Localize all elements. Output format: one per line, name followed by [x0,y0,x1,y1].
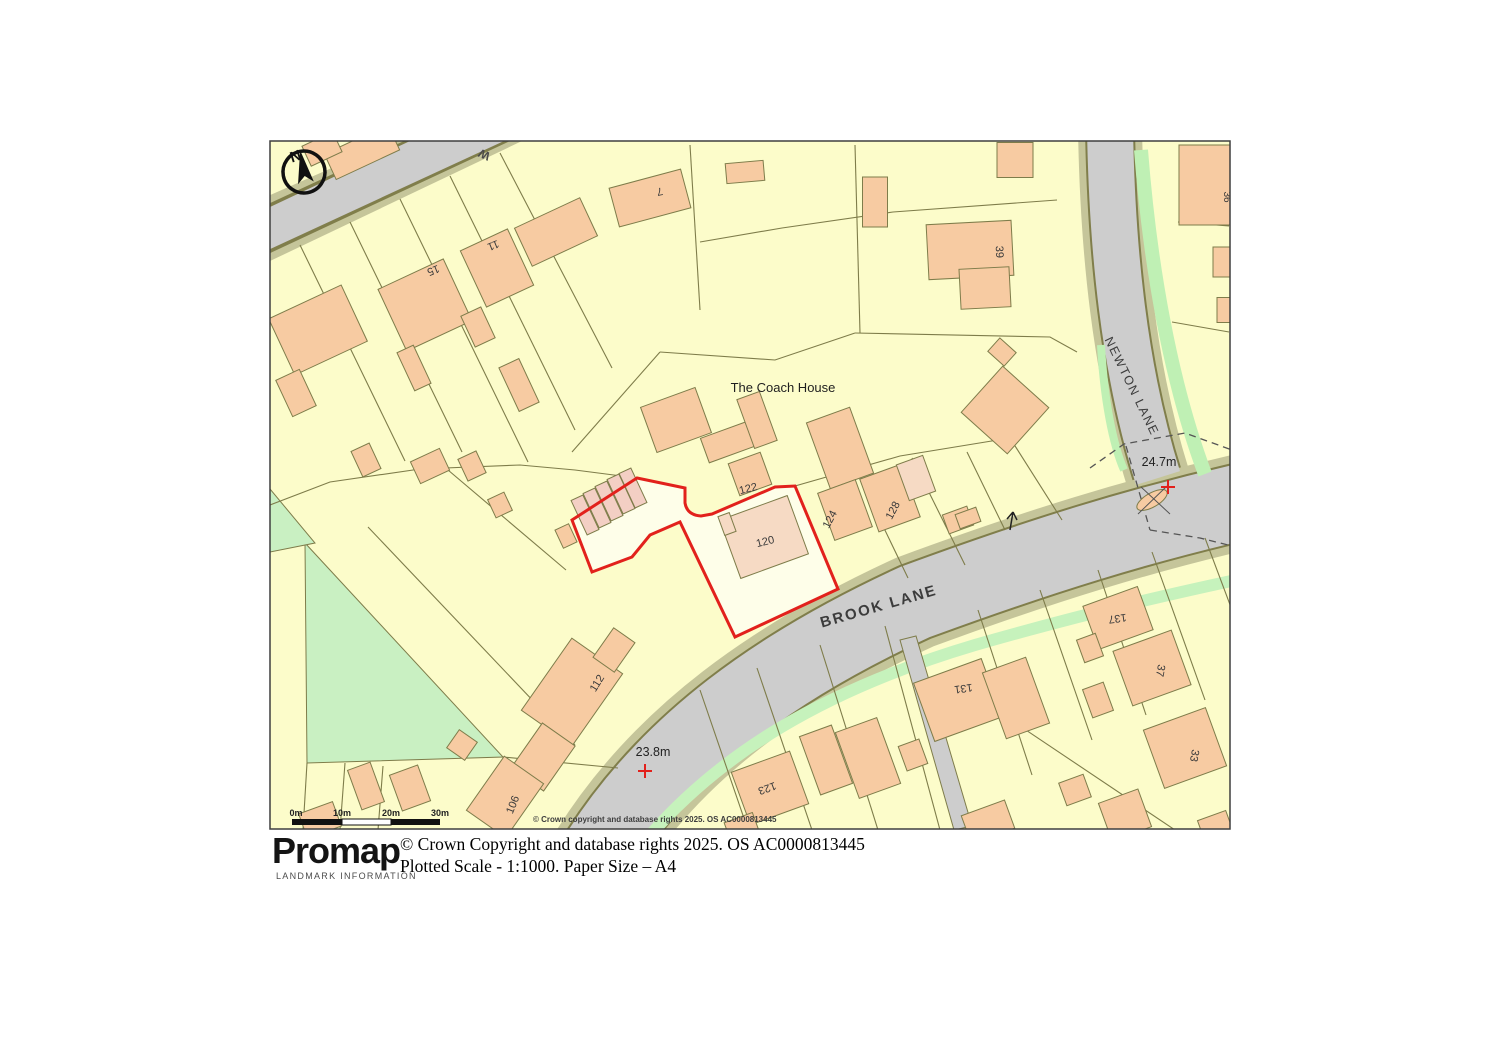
label-coach-house: The Coach House [731,380,836,395]
scale-label-0m: 0m [289,808,302,818]
copyright-line: © Crown Copyright and database rights 20… [400,834,865,856]
landmark-label: LANDMARK INFORMATION [276,871,417,881]
scale-label-30m: 30m [431,808,449,818]
label-plot-39: 39 [993,246,1005,259]
building [1217,298,1231,323]
map-content: WThe Coach House120122124128151173936137… [268,125,1250,856]
label-spot-height-24-7: 24.7m [1142,455,1177,469]
label-plot-131: 131 [953,681,973,695]
scale-bar-segment [292,819,342,825]
scale-bar [292,819,440,825]
scale-bar-segment [391,819,440,825]
promap-logo-text: Promap [272,833,402,869]
building [997,143,1033,178]
footer-attribution: © Crown Copyright and database rights 20… [400,834,865,877]
plotted-scale-line: Plotted Scale - 1:1000. Paper Size – A4 [400,856,865,878]
scale-label-10m: 10m [333,808,351,818]
label-plot-137: 137 [1107,611,1127,625]
map-inline-copyright: © Crown copyright and database rights 20… [533,815,777,824]
label-plot-37: 37 [1153,663,1167,677]
map: WThe Coach House120122124128151173936137… [0,0,1500,1061]
building [725,160,765,183]
promap-logo: Promap LANDMARK INFORMATION [272,833,402,881]
scale-bar-segment [342,819,391,825]
label-plot-33: 33 [1187,748,1201,762]
building [1179,145,1231,225]
building [959,267,1011,310]
promap-plot-page: WThe Coach House120122124128151173936137… [0,0,1500,1061]
building [1213,247,1231,277]
label-spot-height-23-8: 23.8m [636,745,671,759]
scale-label-20m: 20m [382,808,400,818]
landmark-information-tagline: LANDMARK INFORMATION [272,871,402,881]
building [863,177,888,227]
